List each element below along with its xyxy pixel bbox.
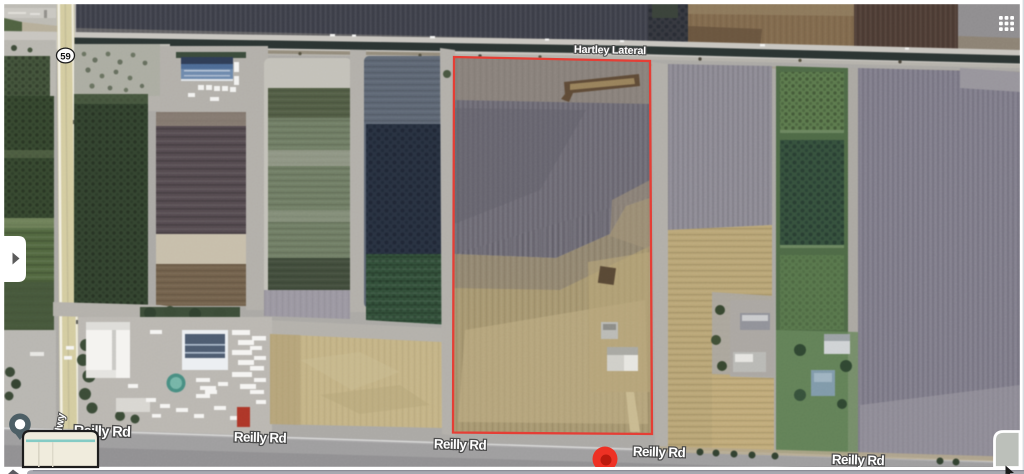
svg-text:Reilly Rd: Reilly Rd xyxy=(832,452,885,468)
svg-text:59: 59 xyxy=(60,51,71,62)
svg-text:Hartley Lateral: Hartley Lateral xyxy=(574,44,646,58)
svg-text:Reilly Rd: Reilly Rd xyxy=(234,429,287,445)
svg-text:Reilly Rd: Reilly Rd xyxy=(633,444,686,460)
svg-text:Reilly Rd: Reilly Rd xyxy=(434,436,487,452)
